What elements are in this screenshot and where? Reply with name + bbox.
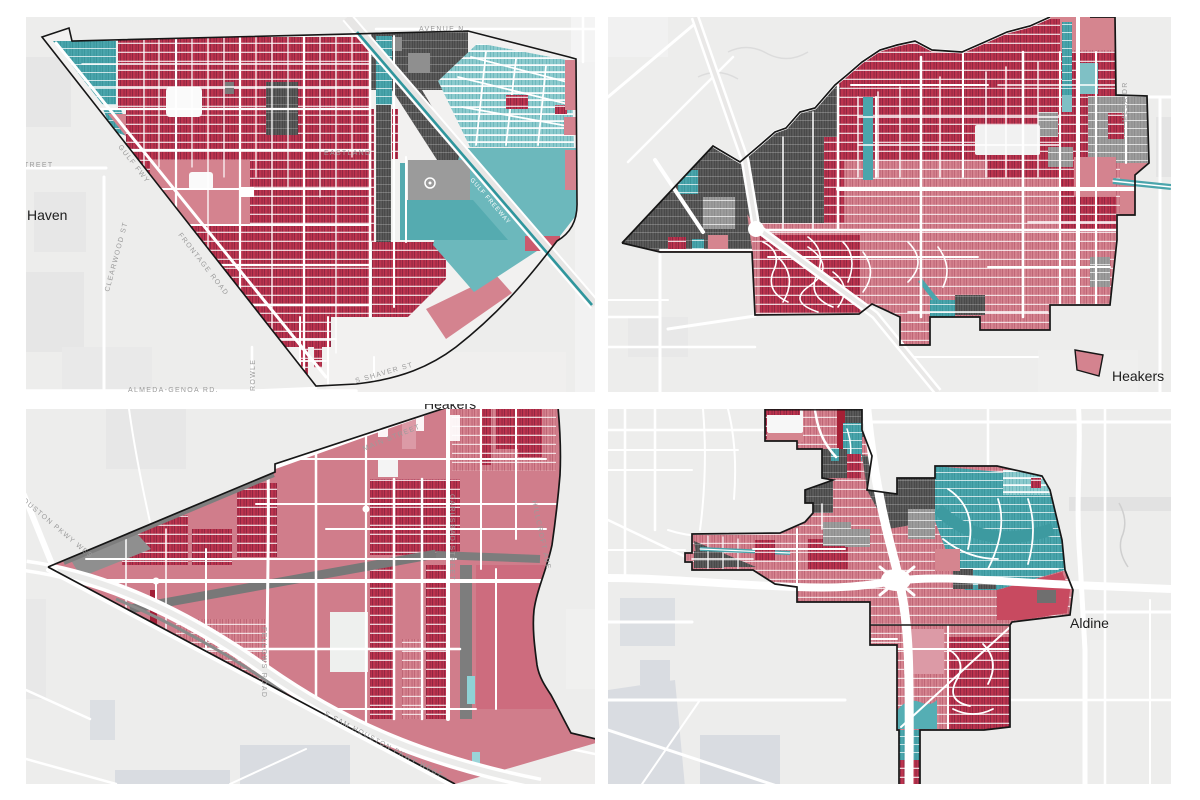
svg-text:CARLSBAD STREET: CARLSBAD STREET <box>448 494 455 581</box>
svg-text:Haven: Haven <box>27 207 67 223</box>
svg-text:ALMEDA-GENOA RD.: ALMEDA-GENOA RD. <box>128 387 219 392</box>
svg-text:Heakers: Heakers <box>1112 368 1164 384</box>
svg-text:AVENUE N: AVENUE N <box>419 26 465 33</box>
svg-text:FELLOWS ROAD: FELLOWS ROAD <box>260 627 267 698</box>
svg-text:EASTLAND: EASTLAND <box>324 150 371 157</box>
svg-text:Aldine: Aldine <box>1070 615 1109 631</box>
svg-text:ROWLE: ROWLE <box>250 359 257 391</box>
svg-text:MESA DR: MESA DR <box>1122 81 1129 122</box>
svg-text:STREET: STREET <box>26 162 53 169</box>
